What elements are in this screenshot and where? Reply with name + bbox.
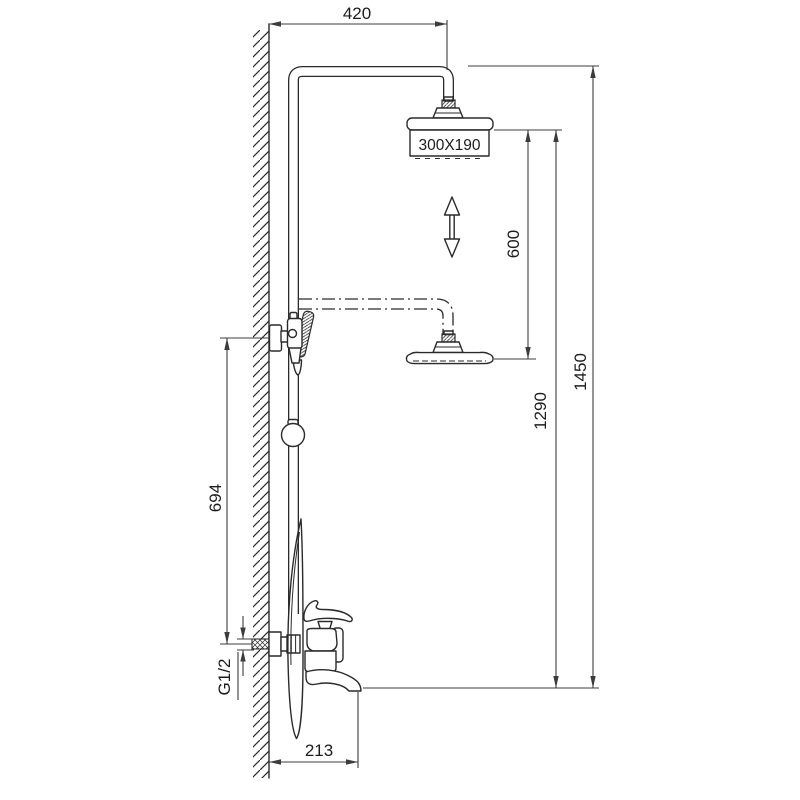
shower-technical-drawing: 300X190: [0, 0, 800, 800]
lower-head-disc: [406, 352, 493, 363]
dim-420-arrow-right: [435, 21, 447, 26]
dim-420: 420: [269, 4, 447, 70]
mixer-body: [305, 651, 336, 672]
cartridge-dome: [307, 629, 337, 652]
dim-1290-arrow-top: [553, 130, 558, 142]
phantom-arm-inner-line: [299, 309, 443, 335]
head-size-label: 300X190: [418, 137, 480, 154]
bracket-wall-flange: [270, 325, 282, 351]
lower-arm-phantom: [299, 299, 453, 335]
mixer-faucet: [304, 601, 361, 691]
shower-technical-drawing-page: 300X190: [0, 0, 800, 800]
overhead-shower-upper: 300X190: [407, 97, 493, 159]
clamp-screw: [289, 330, 297, 338]
knob-ball: [282, 424, 305, 447]
dim-1450: 1450: [363, 66, 599, 688]
dim-1290-arrow-bottom: [553, 676, 558, 688]
dim-1450-arrow-bottom: [590, 676, 595, 688]
inlet-thread-nipple: [252, 639, 269, 649]
dim-694-label: 694: [206, 484, 225, 512]
dim-213-arrow-right: [346, 759, 358, 764]
dim-213-arrow-left: [269, 759, 281, 764]
arrow-shaft: [450, 214, 454, 240]
dim-600-arrow-bottom: [525, 347, 530, 359]
slider-knob: [282, 420, 305, 447]
dim-600-arrow-top: [525, 130, 530, 142]
dim-g12-arrow-down: [240, 628, 245, 640]
spout: [306, 670, 361, 691]
dim-g12: G1/2: [215, 616, 254, 700]
overhead-shower-lower: [406, 331, 493, 364]
dim-213: 213: [269, 692, 358, 768]
dim-694-arrow-bottom: [224, 632, 229, 644]
dim-213-label: 213: [305, 741, 333, 760]
head-flange: [407, 118, 493, 130]
dim-600-label: 600: [504, 230, 523, 258]
height-adjust-arrow-icon: [445, 197, 460, 257]
dim-600: 600: [494, 130, 562, 359]
dim-1450-label: 1450: [571, 353, 590, 391]
dim-1290-label: 1290: [531, 392, 550, 430]
lower-connector-collar: [442, 334, 455, 342]
phantom-arm-outer-line: [299, 299, 453, 335]
dim-1290: 1290: [531, 130, 559, 688]
mixer-lever-handle: [304, 601, 352, 622]
wall: [253, 24, 269, 778]
arrow-head-up: [445, 197, 460, 215]
inlet-hex-nut: [287, 635, 300, 653]
wall-hatching: [253, 30, 269, 778]
dim-g12-arrow-up: [240, 650, 245, 662]
dim-694-arrow-top: [224, 338, 229, 350]
dim-420-label: 420: [343, 4, 371, 23]
dim-1450-arrow-top: [590, 66, 595, 78]
dim-g12-label: G1/2: [215, 659, 234, 696]
inlet-flange: [269, 632, 281, 656]
head-connector-collar: [442, 100, 455, 108]
dim-420-arrow-left: [269, 21, 281, 26]
arrow-head-down: [445, 239, 460, 257]
